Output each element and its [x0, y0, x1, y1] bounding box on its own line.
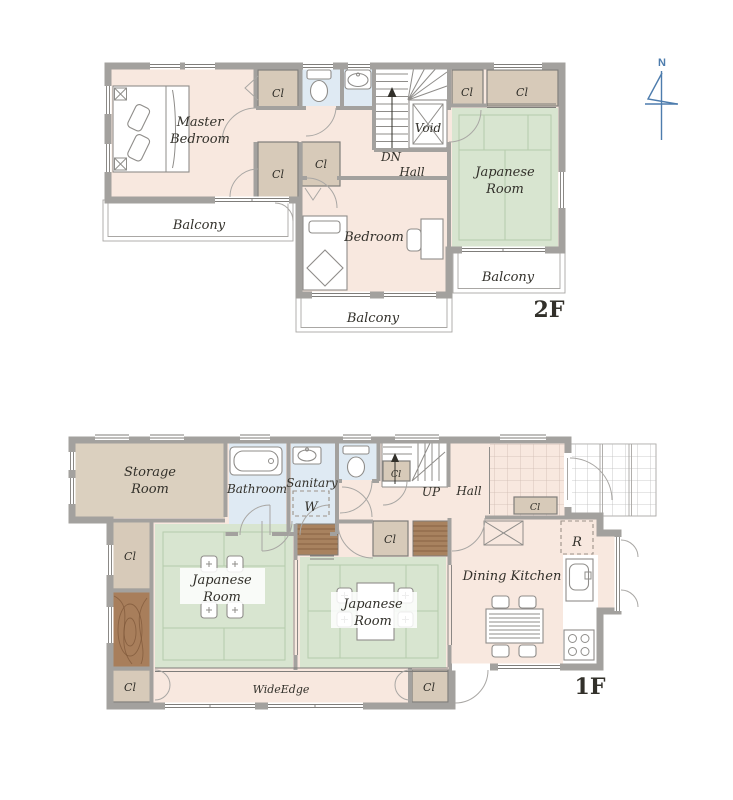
single-bed — [303, 216, 347, 290]
label-bathroom: Bathroom — [226, 482, 287, 496]
stove-icon — [564, 630, 594, 660]
label-floor-2f: 2F — [534, 297, 565, 323]
label-closet-2f-right-1: Cl — [461, 86, 473, 99]
washbasin-icon-2f — [345, 70, 371, 89]
label-japanese-room-left-2: Room — [202, 590, 241, 605]
label-storage-room-1: Storage — [124, 465, 176, 480]
label-void: Void — [415, 121, 442, 135]
label-closet-bottom-right: Cl — [423, 681, 435, 694]
label-sanitary: Sanitary — [286, 476, 338, 490]
label-balcony-left: Balcony — [172, 218, 226, 233]
louver-closet-left — [296, 524, 338, 555]
compass-north-arrow: N — [645, 57, 678, 140]
storage-room — [75, 443, 225, 518]
label-wide-edge: WideEdge — [253, 683, 310, 696]
label-japanese-room-2f-1: Japanese — [472, 165, 535, 180]
label-closet-bottom-left: Cl — [124, 681, 136, 694]
floor-2-plan: Master Bedroom Cl Cl Cl Cl Cl Void DN Ha… — [103, 63, 566, 333]
label-japanese-room-right-2: Room — [353, 614, 392, 629]
label-closet-2f-mid-left: Cl — [272, 168, 284, 181]
label-dn: DN — [380, 150, 402, 164]
label-washer: W — [304, 500, 319, 515]
floor-plan-page: Master Bedroom Cl Cl Cl Cl Cl Void DN Ha… — [0, 0, 733, 800]
floor-plan-image: Master Bedroom Cl Cl Cl Cl Cl Void DN Ha… — [0, 0, 733, 800]
label-hall-2f: Hall — [398, 165, 424, 179]
label-hall-1f: Hall — [455, 484, 481, 498]
label-bedroom-2f: Bedroom — [343, 230, 404, 245]
compass-north-label: N — [658, 57, 666, 69]
label-master-bedroom-2: Bedroom — [169, 132, 230, 147]
label-up: UP — [422, 485, 441, 499]
label-storage-room-2: Room — [130, 482, 169, 497]
label-closet-under-stairs: Cl — [391, 469, 401, 480]
kitchen-sink-icon — [566, 559, 593, 601]
label-floor-1f: 1F — [575, 674, 606, 700]
label-master-bedroom-1: Master — [176, 115, 225, 130]
bathtub-icon — [230, 447, 282, 475]
tokonoma-alcove — [110, 592, 151, 667]
label-closet-2f-top: Cl — [272, 87, 284, 100]
floor-1-plan: Storage Room Bathroom Sanitary W Cl UP H… — [69, 433, 657, 710]
label-japanese-room-right-1: Japanese — [340, 597, 403, 612]
entrance-porch — [568, 444, 656, 516]
label-dining-kitchen: Dining Kitchen — [462, 569, 562, 584]
label-japanese-room-left-1: Japanese — [189, 573, 252, 588]
label-japanese-room-2f-2: Room — [485, 182, 524, 197]
louver-closet-right — [413, 521, 449, 556]
label-balcony-right: Balcony — [481, 270, 535, 285]
label-refrigerator: R — [571, 535, 582, 550]
label-closet-left-top: Cl — [124, 550, 136, 563]
label-shoe-closet: Cl — [530, 502, 540, 513]
label-closet-2f-right-2: Cl — [516, 86, 528, 99]
label-balcony-bottom: Balcony — [346, 311, 400, 326]
sanitary-sink-icon — [293, 447, 321, 464]
label-closet-2f-mid-right: Cl — [315, 158, 327, 171]
label-closet-band: Cl — [384, 533, 396, 546]
